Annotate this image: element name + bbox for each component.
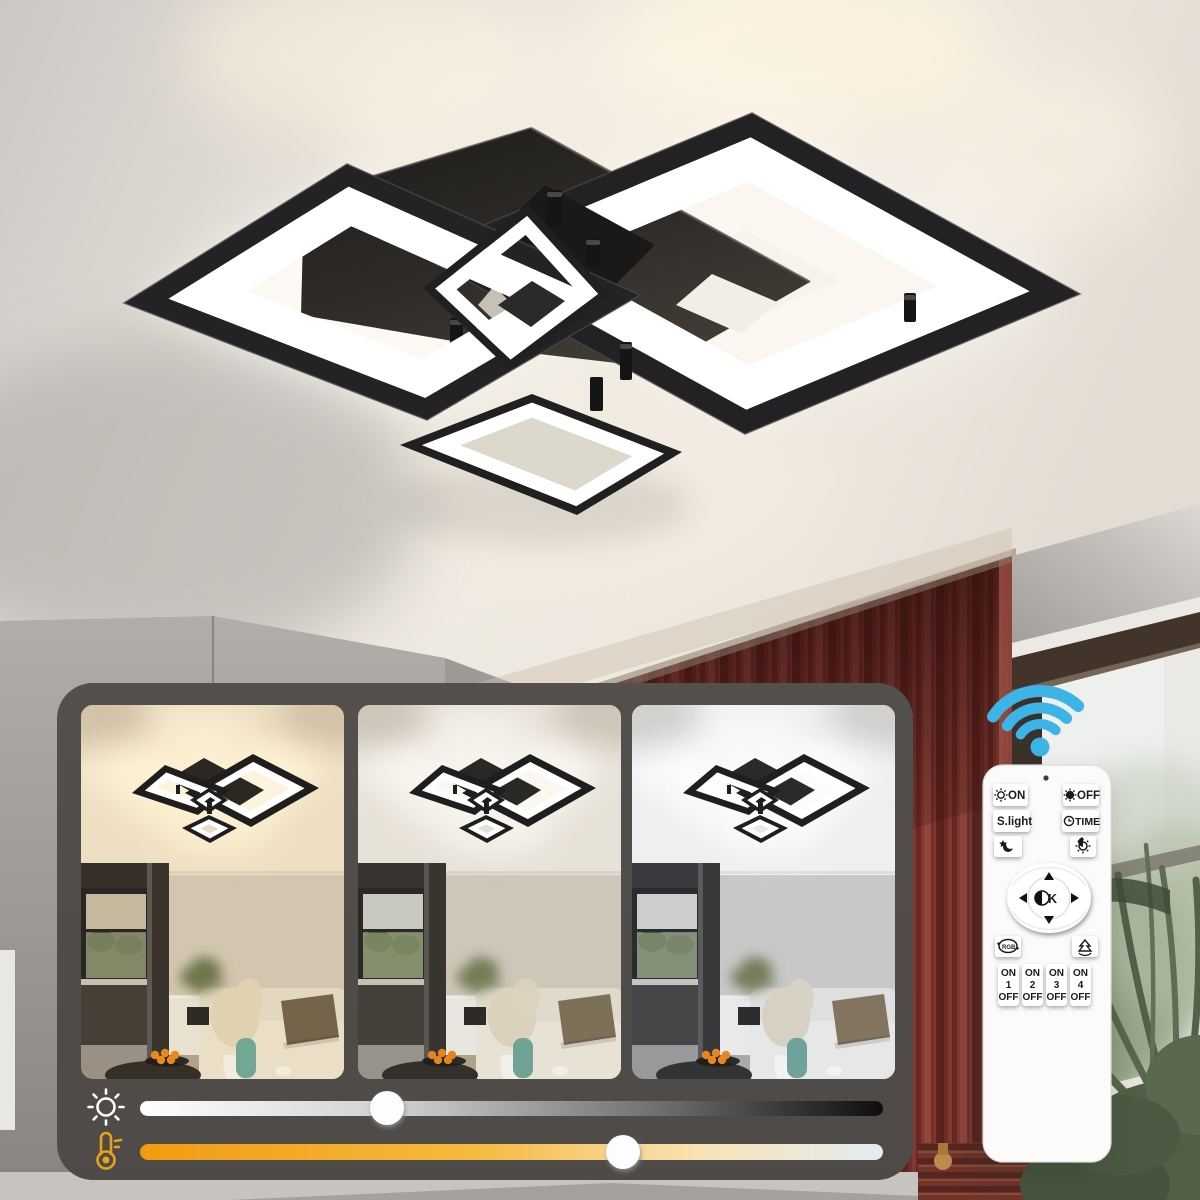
svg-text:ON: ON: [1073, 968, 1088, 979]
svg-text:2: 2: [1030, 980, 1036, 991]
svg-text:OFF: OFF: [1077, 790, 1100, 802]
svg-text:RGB: RGB: [1002, 945, 1016, 951]
svg-text:3: 3: [1054, 980, 1060, 991]
svg-text:OFF: OFF: [1023, 992, 1043, 1003]
svg-text:OFF: OFF: [1047, 992, 1067, 1003]
svg-text:1: 1: [1006, 980, 1012, 991]
svg-text:ON: ON: [1001, 968, 1016, 979]
svg-text:ON: ON: [1049, 968, 1064, 979]
svg-text:S.light: S.light: [997, 816, 1032, 828]
svg-text:OFF: OFF: [1071, 992, 1091, 1003]
svg-text:K: K: [1048, 892, 1057, 906]
svg-text:OFF: OFF: [999, 992, 1019, 1003]
svg-text:ON: ON: [1008, 790, 1025, 802]
svg-text:4: 4: [1078, 980, 1084, 991]
svg-text:ON: ON: [1025, 968, 1040, 979]
svg-text:TIME: TIME: [1075, 816, 1100, 828]
